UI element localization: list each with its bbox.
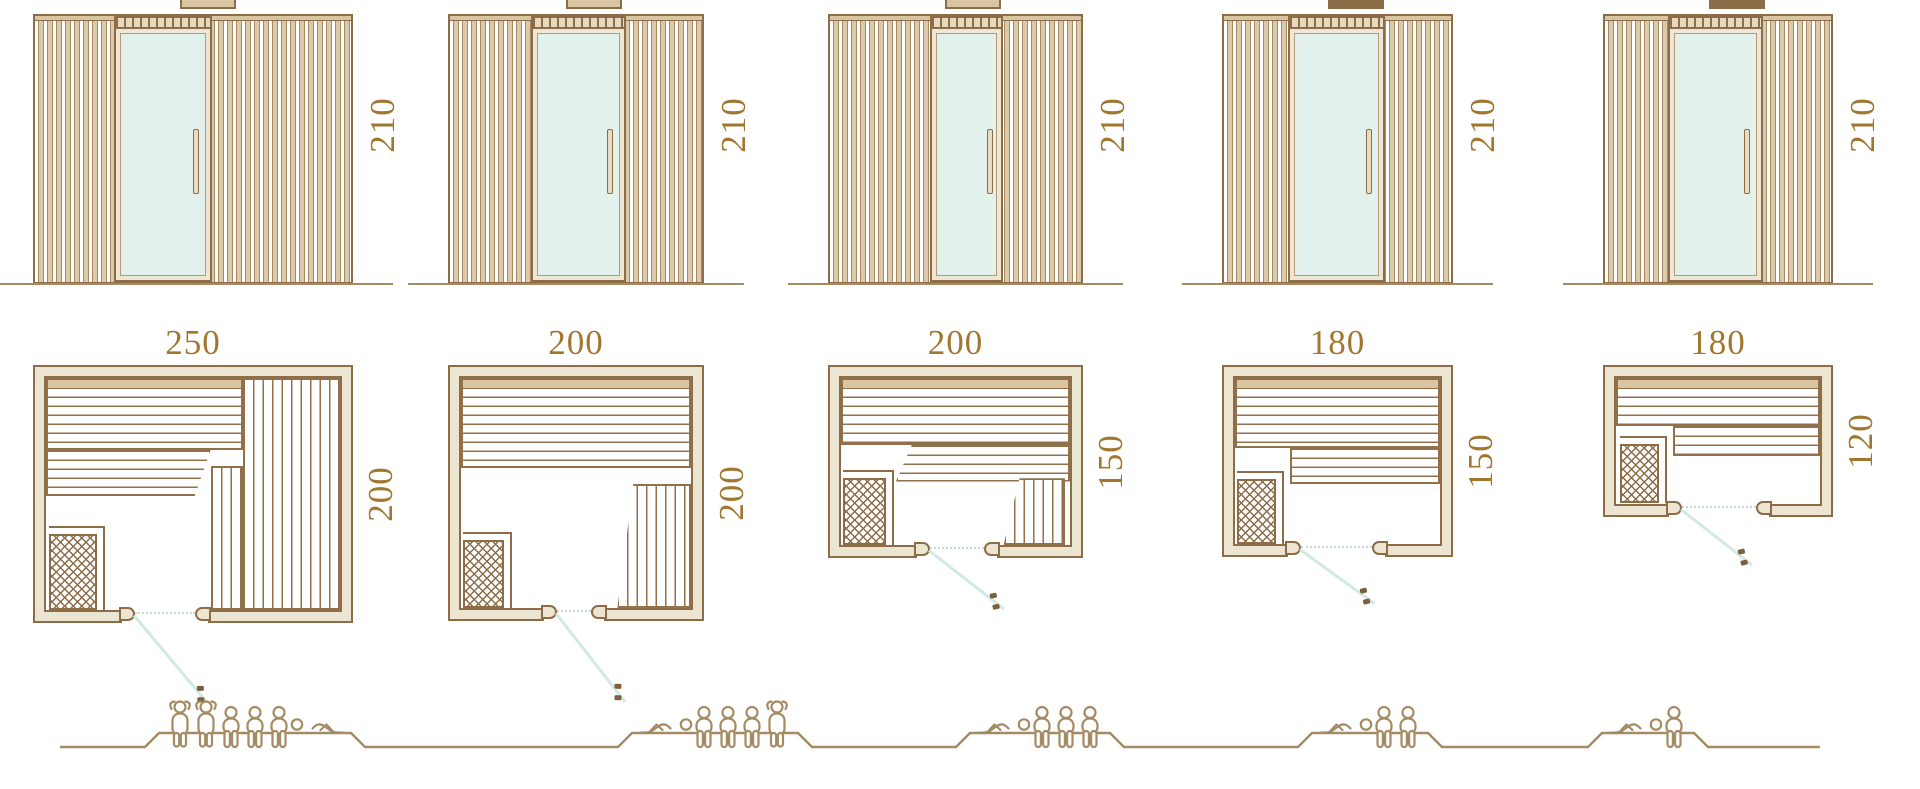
person-figure-sitting xyxy=(1059,707,1074,747)
sauna-front-elevation: 210 xyxy=(448,0,704,285)
door-jamb xyxy=(984,542,1000,556)
sauna-facade xyxy=(1222,14,1453,284)
heater-icon xyxy=(463,532,511,608)
plan-interior xyxy=(1614,376,1822,506)
roof-vent-cap xyxy=(566,0,622,9)
person-figure-sitting xyxy=(272,707,287,747)
width-dimension-label: 200 xyxy=(830,323,1081,363)
door-opening xyxy=(1288,541,1384,557)
person-figure-standing xyxy=(170,702,189,747)
heater-icon xyxy=(49,526,105,610)
sauna-front-elevation: 210 xyxy=(33,0,353,285)
person-figure-standing xyxy=(767,702,786,747)
door-swing-line xyxy=(928,549,1005,610)
sauna-model-column: 210 250 200 xyxy=(33,0,353,789)
sauna-model-column: 210 200 200 xyxy=(448,0,704,789)
door-opening xyxy=(122,607,207,623)
person-figure-sitting xyxy=(1401,707,1416,747)
glass-door xyxy=(1288,27,1386,282)
door-jamb xyxy=(541,605,557,619)
door-handle-icon xyxy=(987,129,993,194)
door-jamb xyxy=(1372,541,1388,555)
door-opening xyxy=(917,542,997,558)
width-dimension-label: 250 xyxy=(35,323,351,363)
door-handle-icon xyxy=(607,129,613,194)
person-figure-sitting xyxy=(1377,707,1392,747)
person-figure-sitting xyxy=(721,707,736,747)
sauna-floor-plan: 200 150 xyxy=(828,365,1083,558)
side-bench xyxy=(1004,478,1066,545)
door-handle-marker-icon xyxy=(1363,598,1371,605)
door-jamb xyxy=(195,607,211,621)
roof-vent-cap xyxy=(1328,0,1384,9)
door-closed-line xyxy=(135,612,194,614)
heater-guard-lattice xyxy=(843,478,885,545)
door-handle-marker-icon xyxy=(1360,587,1368,594)
height-dimension-label: 210 xyxy=(362,98,402,154)
upper-bench xyxy=(461,378,691,468)
depth-dimension-label: 200 xyxy=(711,465,751,521)
door-jamb xyxy=(591,605,607,619)
sauna-facade xyxy=(33,14,353,284)
sauna-floor-plan: 200 200 xyxy=(448,365,704,621)
height-dimension-label: 210 xyxy=(713,98,753,154)
plan-interior xyxy=(44,376,342,612)
door-closed-line xyxy=(1682,506,1756,508)
height-dimension-label: 210 xyxy=(1462,98,1502,154)
person-figure-lying-head-right xyxy=(1321,719,1371,732)
width-dimension-label: 200 xyxy=(450,323,702,363)
roof-vent-cap xyxy=(945,0,1001,9)
heater-guard-lattice xyxy=(1237,479,1276,544)
door-opening xyxy=(1669,501,1769,517)
door-section xyxy=(1288,16,1386,282)
sauna-model-column: 210 200 150 xyxy=(828,0,1083,789)
sauna-floor-plan: 180 120 xyxy=(1603,365,1833,517)
door-jamb xyxy=(1666,501,1682,515)
door-handle-marker-icon xyxy=(1740,559,1748,565)
door-jamb xyxy=(1756,501,1772,515)
depth-dimension-label: 150 xyxy=(1090,434,1130,490)
door-swing-line xyxy=(1680,508,1753,566)
door-closed-line xyxy=(930,547,984,549)
capacity-strip xyxy=(0,690,1920,789)
width-dimension-label: 180 xyxy=(1224,323,1451,363)
plan-interior xyxy=(839,376,1072,547)
glass-door xyxy=(1668,27,1763,282)
sauna-model-column: 210 180 120 xyxy=(1603,0,1833,789)
person-figure-lying-head-left xyxy=(292,719,342,732)
door-section xyxy=(114,16,212,282)
upper-bench xyxy=(46,378,243,450)
door-closed-line xyxy=(557,610,591,612)
sauna-front-elevation: 210 xyxy=(1222,0,1453,285)
ground-line xyxy=(788,283,1123,286)
ground-line xyxy=(0,283,393,286)
side-bench xyxy=(243,378,340,610)
roof-vent-cap xyxy=(180,0,236,9)
sauna-size-lineup-diagram: 210 250 200 xyxy=(0,0,1920,789)
upper-bench xyxy=(1235,378,1440,448)
lower-bench xyxy=(1290,448,1440,485)
heater-guard-lattice xyxy=(49,534,97,610)
upper-bench xyxy=(841,378,1070,445)
sauna-front-elevation: 210 xyxy=(828,0,1083,285)
depth-dimension-label: 200 xyxy=(360,466,400,522)
person-figure-sitting xyxy=(1083,707,1098,747)
sauna-floor-plan: 180 150 xyxy=(1222,365,1453,557)
side-bench xyxy=(617,484,691,608)
person-figure-sitting xyxy=(224,707,239,747)
heater-icon xyxy=(843,470,893,545)
bench-profile-line xyxy=(60,733,1820,747)
door-section xyxy=(1668,16,1763,282)
sauna-model-column: 210 180 150 xyxy=(1222,0,1453,789)
sauna-front-elevation: 210 xyxy=(1603,0,1833,285)
depth-dimension-label: 120 xyxy=(1840,413,1880,469)
person-figure-standing xyxy=(196,702,215,747)
person-figures xyxy=(170,702,1681,748)
person-figure-sitting xyxy=(1667,707,1682,747)
roof-vent-cap xyxy=(1709,0,1765,9)
door-swing-line xyxy=(1299,548,1375,605)
door-handle-marker-icon xyxy=(614,684,621,689)
plan-interior xyxy=(459,376,693,610)
lower-bench xyxy=(896,445,1070,482)
lower-bench xyxy=(46,450,211,496)
sauna-facade xyxy=(828,14,1083,284)
door-jamb xyxy=(119,607,135,621)
door-handle-marker-icon xyxy=(992,604,1000,610)
door-handle-marker-icon xyxy=(989,593,997,599)
door-jamb xyxy=(1285,541,1301,555)
person-figure-lying-head-right xyxy=(641,719,691,732)
heater-guard-lattice xyxy=(463,540,503,608)
person-figure-sitting xyxy=(697,707,712,747)
person-figure-lying-head-right xyxy=(979,719,1029,732)
ground-line xyxy=(408,283,744,286)
door-jamb xyxy=(914,542,930,556)
ground-line xyxy=(1563,283,1873,286)
door-handle-marker-icon xyxy=(1737,548,1745,554)
glass-door xyxy=(930,27,1003,282)
lower-bench xyxy=(1673,426,1820,456)
door-handle-icon xyxy=(193,129,199,194)
person-figure-sitting xyxy=(248,707,263,747)
door-section xyxy=(531,16,627,282)
door-closed-line xyxy=(1301,546,1371,548)
height-dimension-label: 210 xyxy=(1842,98,1882,154)
sauna-floor-plan: 250 200 xyxy=(33,365,353,623)
door-section xyxy=(930,16,1003,282)
side-bench-step xyxy=(211,466,243,610)
depth-dimension-label: 150 xyxy=(1460,433,1500,489)
person-figure-sitting xyxy=(745,707,760,747)
door-handle-icon xyxy=(1366,129,1372,194)
sauna-facade xyxy=(1603,14,1833,284)
door-opening xyxy=(544,605,604,621)
plan-interior xyxy=(1233,376,1442,546)
glass-door xyxy=(531,27,627,282)
ground-line xyxy=(1182,283,1493,286)
door-handle-icon xyxy=(1744,129,1750,194)
heater-icon xyxy=(1237,471,1284,544)
person-figure-lying-head-right xyxy=(1611,719,1661,732)
height-dimension-label: 210 xyxy=(1092,98,1132,154)
glass-door xyxy=(114,27,212,282)
sauna-facade xyxy=(448,14,704,284)
width-dimension-label: 180 xyxy=(1605,323,1831,363)
upper-bench xyxy=(1616,378,1820,426)
heater-icon xyxy=(1620,436,1667,503)
person-figure-sitting xyxy=(1035,707,1050,747)
heater-guard-lattice xyxy=(1620,444,1659,503)
